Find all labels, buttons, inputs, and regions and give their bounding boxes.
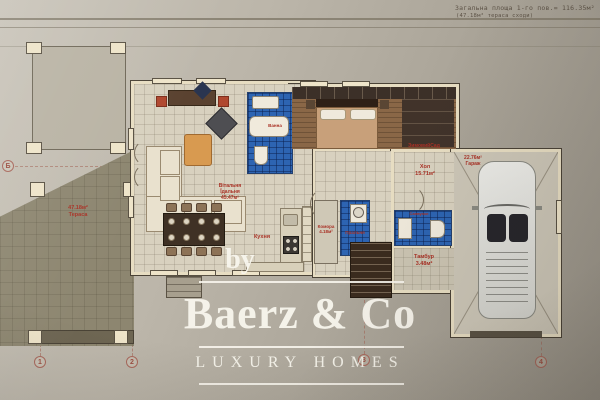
watermark-tagline: LUXURY HOMES (150, 354, 450, 372)
plate (213, 234, 220, 241)
red-stool-2 (218, 96, 229, 107)
hall-label: Хол 15.71м² (402, 164, 448, 177)
kitchen-sink (283, 214, 298, 226)
garage-label: 22.76м² Гараж (456, 155, 490, 167)
plate (183, 234, 190, 241)
sofa-cushion-1 (160, 150, 180, 175)
red-stool-1 (156, 96, 167, 107)
garage-name: Гараж (456, 161, 490, 167)
vestibule-name: Тамбур (402, 254, 446, 261)
living-area: 45.47м² (208, 195, 252, 201)
toilet-bath (254, 146, 268, 165)
vestibule-label: Тамбур 3.48м² (402, 254, 446, 267)
grid-bubble-2: 2 (126, 356, 138, 368)
laundry-label: Пральня (340, 230, 370, 235)
dining-chair (196, 247, 207, 256)
window-garage (556, 200, 562, 234)
window-left-2 (128, 196, 134, 218)
watermark-brand: Baerz & Co (150, 288, 450, 339)
chaise (184, 134, 212, 166)
bed-headboard (316, 99, 378, 107)
sofa-cushion-2 (160, 176, 180, 201)
plate (183, 218, 190, 225)
car-mirror-right (535, 206, 542, 210)
washer-drum (353, 207, 364, 218)
window-top-1 (152, 78, 182, 84)
dining-chair (181, 247, 192, 256)
living-label: Вітальня Їдальня 45.47м² (208, 183, 252, 201)
wardrobe (402, 99, 454, 147)
dining-chair (196, 203, 207, 212)
total-area-note: Загальна площа 1-го пов.= 116.35м² (455, 4, 595, 12)
pillow-1 (320, 109, 346, 120)
wc-sink (398, 218, 412, 239)
hall-name: Хол (402, 164, 448, 171)
pillow-2 (350, 109, 376, 120)
terrace-area-note: (47.18м² тераса сходи) (456, 13, 533, 19)
grid-bubble-1: 1 (34, 356, 46, 368)
car-windshield (484, 204, 530, 214)
stove (283, 236, 299, 254)
grid-dash-row-b (15, 166, 103, 167)
car-seat-right (509, 214, 528, 242)
car-rear-deck (486, 252, 528, 308)
grid-bubble-4: 4 (535, 356, 547, 368)
watermark-rule-2 (199, 346, 404, 348)
grid-bubble-row-b: Б (2, 160, 14, 172)
plate (213, 218, 220, 225)
plate (168, 234, 175, 241)
plate (198, 218, 205, 225)
winter-garden-label: ЗимовийСад (394, 143, 454, 149)
bedroom-closet (292, 87, 456, 99)
title-rule-2 (0, 27, 600, 28)
hall-area: 15.71м² (402, 171, 448, 178)
appliance-tower (302, 206, 312, 262)
car-mirror-left (472, 206, 479, 210)
dining-chair (181, 203, 192, 212)
terrace-area: 47.18м² (52, 205, 104, 212)
bath-vanity (252, 96, 279, 109)
plate (168, 218, 175, 225)
vestibule-area: 3.48м² (402, 261, 446, 268)
nightstand-2 (380, 100, 389, 109)
terrace-label: 47.18м² Тераса (52, 205, 104, 218)
floorplan-photo: Загальна площа 1-го пов.= 116.35м² (47.1… (0, 0, 600, 400)
window-bedroom-2 (342, 81, 370, 87)
deck-pillar-1 (26, 42, 42, 54)
garage-door (470, 331, 542, 337)
bath-label: Ванна (262, 123, 288, 128)
deck-pillar-2 (110, 42, 126, 54)
watermark-rule-3 (199, 383, 404, 385)
dining-chair (211, 203, 222, 212)
nightstand-1 (306, 100, 315, 109)
dining-chair (166, 247, 177, 256)
car-seat-left (487, 214, 506, 242)
terrace-edge-pillar-1 (28, 330, 42, 344)
pantry-area: 4.18м² (314, 229, 338, 234)
plate (198, 234, 205, 241)
wc-label: Санвузол (406, 212, 432, 217)
grid-dash-4 (541, 336, 542, 356)
terrace-name: Тераса (52, 212, 104, 219)
terrace (0, 150, 134, 346)
kitchen-label: Кухня (246, 234, 278, 241)
window-left-1 (128, 128, 134, 150)
deck-pillar-3 (26, 142, 42, 154)
pantry-label: Комора 4.18м² (314, 224, 338, 235)
terrace-pillar-1 (30, 182, 45, 197)
wc-toilet (430, 220, 445, 238)
terrace-edge-pillar-2 (114, 330, 128, 344)
deck-pillar-4 (110, 142, 126, 154)
watermark-by: by (210, 244, 270, 276)
upper-deck (32, 46, 126, 150)
dining-chair (166, 203, 177, 212)
watermark-rule-1 (199, 281, 404, 283)
window-bedroom-1 (300, 81, 328, 87)
